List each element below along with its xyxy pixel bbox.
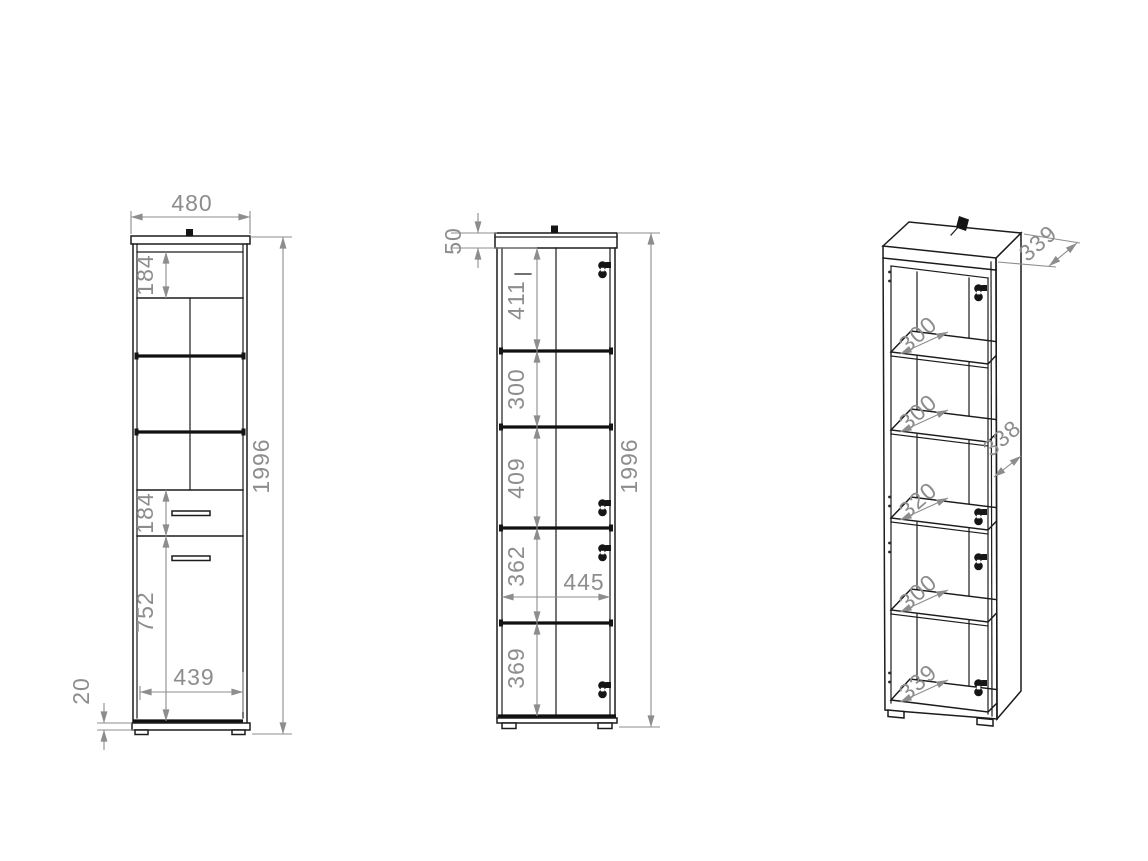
dim-plinth-height: 20: [68, 677, 134, 750]
dim-overall-height: 1996: [616, 233, 660, 727]
dim-top-door-height: 184: [132, 252, 166, 298]
side-panel: [996, 233, 1021, 719]
top-panel-front-edge: [883, 258, 996, 270]
dim-label: 439: [173, 664, 214, 690]
front-outline: [883, 246, 997, 719]
foot: [977, 718, 993, 726]
dim-label: 369: [503, 647, 529, 688]
hinge-icon: [598, 499, 611, 516]
dim-label: 300: [503, 368, 529, 409]
foot: [888, 710, 904, 718]
perspective-view: 339 338 300 300 320 300 339: [883, 216, 1080, 726]
dim-label: 752: [132, 591, 158, 632]
dim-label: 480: [171, 190, 212, 216]
top-panel: [131, 236, 250, 244]
foot: [598, 723, 612, 729]
foot: [232, 730, 245, 735]
dim-label: 1996: [616, 438, 642, 493]
carcass-view: 50 411 300 409 362 369 445 1996: [440, 213, 660, 729]
dim-compartments: 411 300 409 362 369: [503, 248, 537, 716]
dim-label: 445: [563, 569, 604, 595]
wall-mount-bracket-icon: [551, 226, 558, 234]
top-panel: [495, 233, 617, 248]
technical-drawing-canvas: 480 184 184 752 439 20: [0, 0, 1148, 861]
door-handle: [172, 556, 210, 561]
wall-mount-bracket-icon: [186, 229, 193, 237]
hinge-icon: [598, 681, 611, 698]
hinge-icon: [598, 261, 611, 278]
dim-label: 362: [503, 545, 529, 586]
plinth: [132, 723, 250, 730]
dim-label: 1996: [248, 438, 274, 493]
hinge-icon: [974, 553, 987, 570]
dim-label: 184: [132, 254, 158, 295]
hinge-icon: [974, 284, 987, 301]
front-view: 480 184 184 752 439 20: [68, 190, 292, 750]
foot: [502, 723, 516, 729]
dim-label: 409: [503, 457, 529, 498]
dim-label: 184: [132, 492, 158, 533]
foot: [135, 730, 148, 735]
drawer-handle: [172, 511, 210, 516]
dim-label: 50: [440, 227, 466, 255]
hinge-icon: [598, 544, 611, 561]
dim-label: 20: [68, 677, 94, 705]
top-panel: [883, 222, 1021, 258]
dim-door-width: 439: [140, 664, 243, 712]
dim-overall-height: 1996: [248, 237, 292, 734]
cabinet-drawing: 480 184 184 752 439 20: [0, 0, 1148, 861]
dim-drawer-height: 184: [132, 490, 166, 536]
dim-label: 411: [503, 280, 529, 320]
dim-overall-width: 480: [131, 190, 250, 234]
